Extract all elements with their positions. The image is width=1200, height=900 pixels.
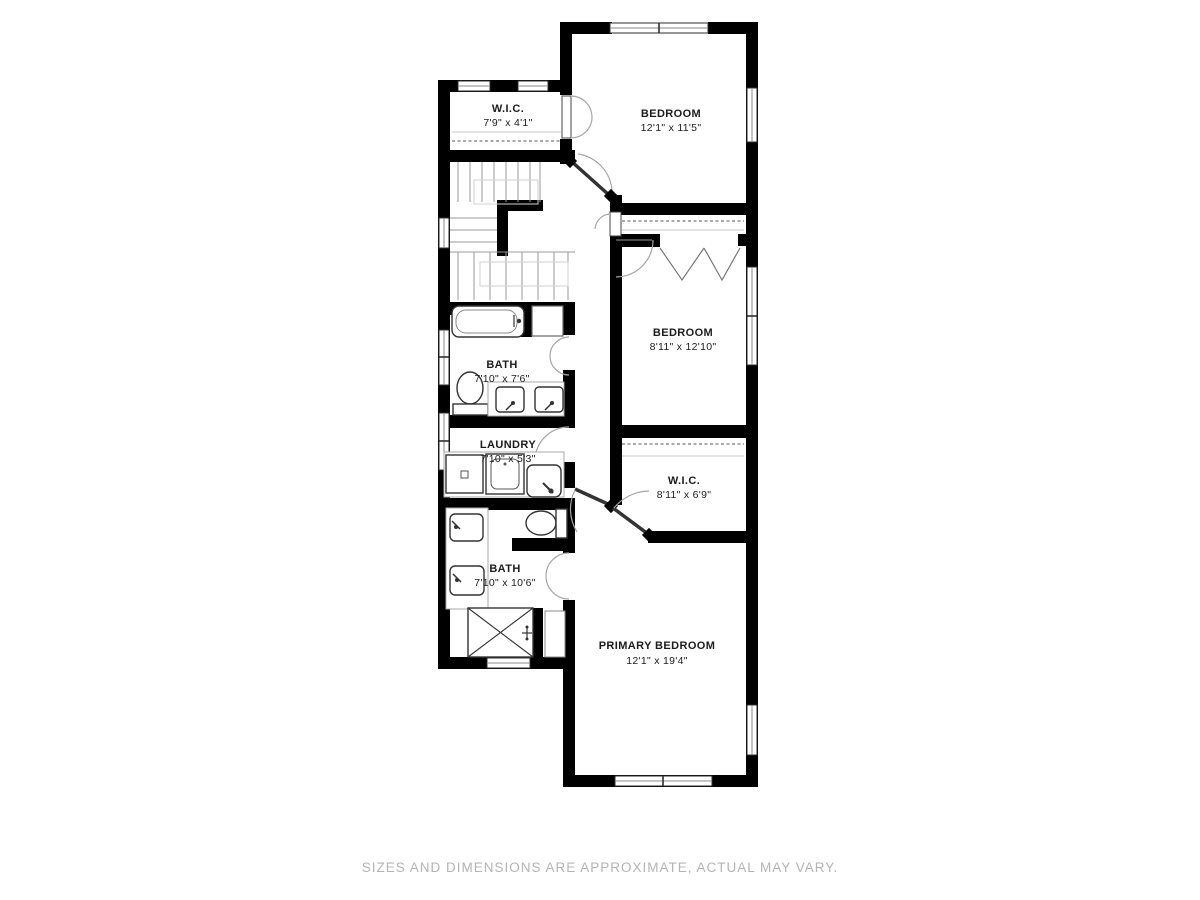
window-icon: [610, 23, 708, 33]
sink-icon: [535, 387, 563, 412]
door-swing-icon: [550, 337, 569, 375]
bifold-door-icon: [704, 248, 740, 280]
floor-plan-page: W.I.C. 7'9" x 4'1" BEDROOM 12'1" x 11'5"…: [0, 0, 1200, 900]
room-label-bath-upper: BATH: [486, 359, 517, 371]
window-icon: [439, 330, 449, 385]
window-icon: [747, 705, 757, 755]
room-label-primary-bedroom: PRIMARY BEDROOM: [599, 640, 716, 652]
window-icon: [747, 88, 757, 142]
window-icon: [518, 81, 548, 91]
door-swing-icon: [546, 553, 569, 599]
room-label-bedroom-upper: BEDROOM: [641, 108, 701, 120]
toilet-icon: [526, 509, 567, 538]
stairs-icon: [450, 162, 575, 300]
room-dims-bath-primary: 7'10" x 10'6": [474, 577, 536, 589]
vanity-double-sink: [446, 508, 488, 609]
room-dims-laundry: 7'10" x 5'3": [480, 453, 535, 465]
window-icon: [487, 658, 530, 668]
bathtub-icon: [452, 306, 524, 337]
room-dims-wic-primary: 8'11" x 6'9": [657, 489, 712, 501]
room-label-wic-upper: W.I.C.: [492, 103, 524, 115]
room-dims-wic-upper: 7'9" x 4'1": [483, 117, 532, 129]
room-dims-primary-bedroom: 12'1" x 19'4": [626, 655, 688, 667]
room-label-laundry: LAUNDRY: [480, 439, 536, 451]
vanity-double-sink: [488, 382, 564, 416]
disclaimer-text: SIZES AND DIMENSIONS ARE APPROXIMATE, AC…: [362, 860, 839, 875]
window-icon: [458, 81, 490, 91]
window-icon: [747, 267, 757, 365]
shower-icon: [468, 608, 533, 657]
room-dims-bedroom-middle: 8'11" x 12'10": [650, 341, 717, 353]
sink-icon: [496, 387, 524, 412]
room-label-bedroom-middle: BEDROOM: [653, 327, 713, 339]
window-icon: [615, 776, 712, 786]
door-swing-icon: [563, 154, 618, 203]
room-dims-bath-upper: 7'10" x 7'6": [474, 373, 529, 385]
room-label-bath-primary: BATH: [489, 563, 520, 575]
room-dims-bedroom-upper: 12'1" x 11'5": [641, 122, 702, 134]
washer-icon: [446, 455, 483, 493]
shower-niche: [545, 611, 565, 657]
bifold-door-icon: [660, 248, 704, 280]
room-label-wic-primary: W.I.C.: [668, 475, 700, 487]
window-icon: [439, 218, 449, 248]
linen-niche: [532, 306, 563, 336]
laundry-sink-icon: [527, 465, 561, 497]
door-swing-icon: [562, 96, 592, 138]
floor-plan-svg: W.I.C. 7'9" x 4'1" BEDROOM 12'1" x 11'5"…: [0, 0, 1200, 900]
